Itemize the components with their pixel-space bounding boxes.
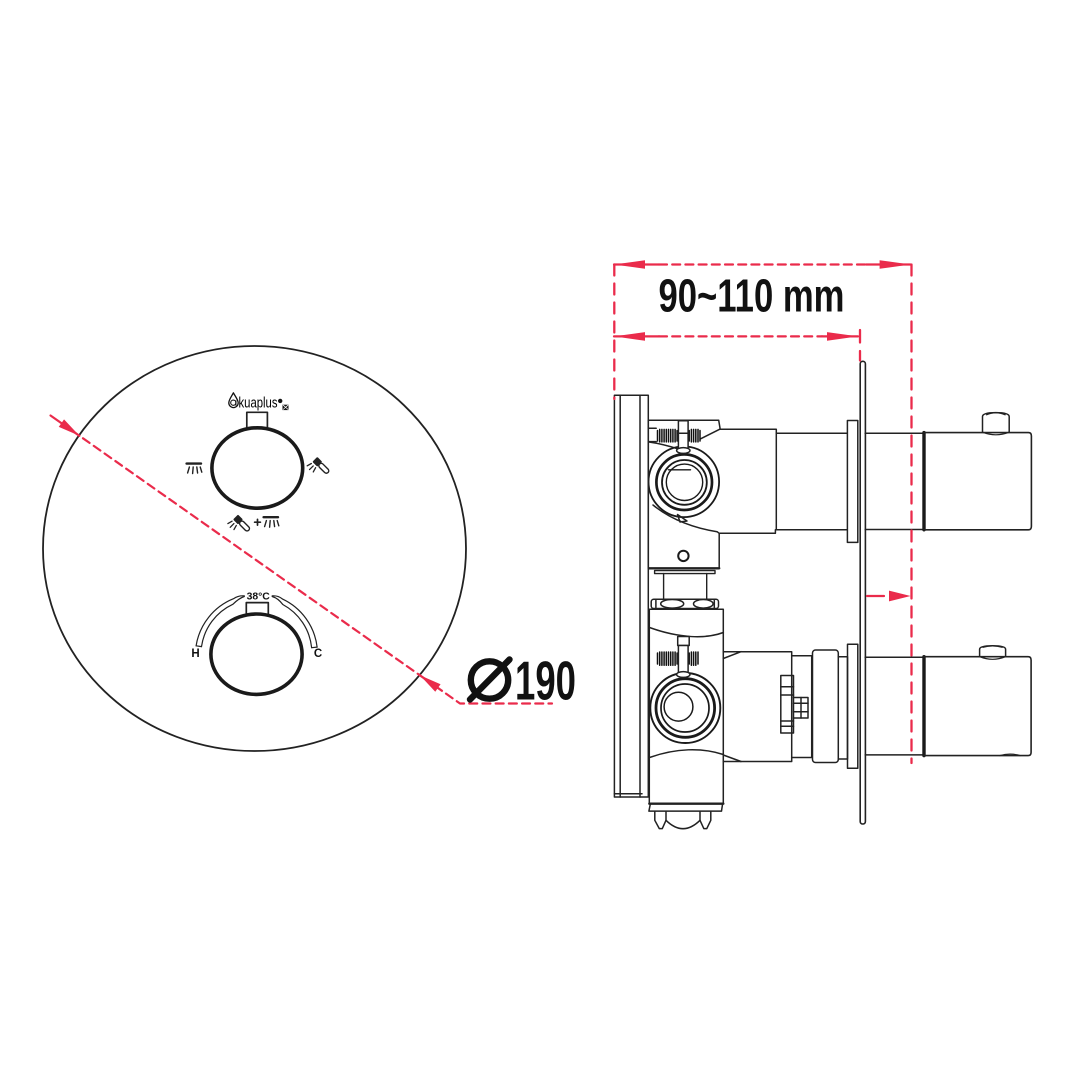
svg-text:kuaplus: kuaplus (239, 395, 278, 412)
svg-text:38°C: 38°C (247, 592, 271, 603)
svg-text:90~110 mm: 90~110 mm (659, 270, 845, 322)
svg-text:H: H (191, 648, 199, 660)
svg-text:C: C (314, 648, 322, 660)
svg-text:190: 190 (515, 650, 576, 712)
